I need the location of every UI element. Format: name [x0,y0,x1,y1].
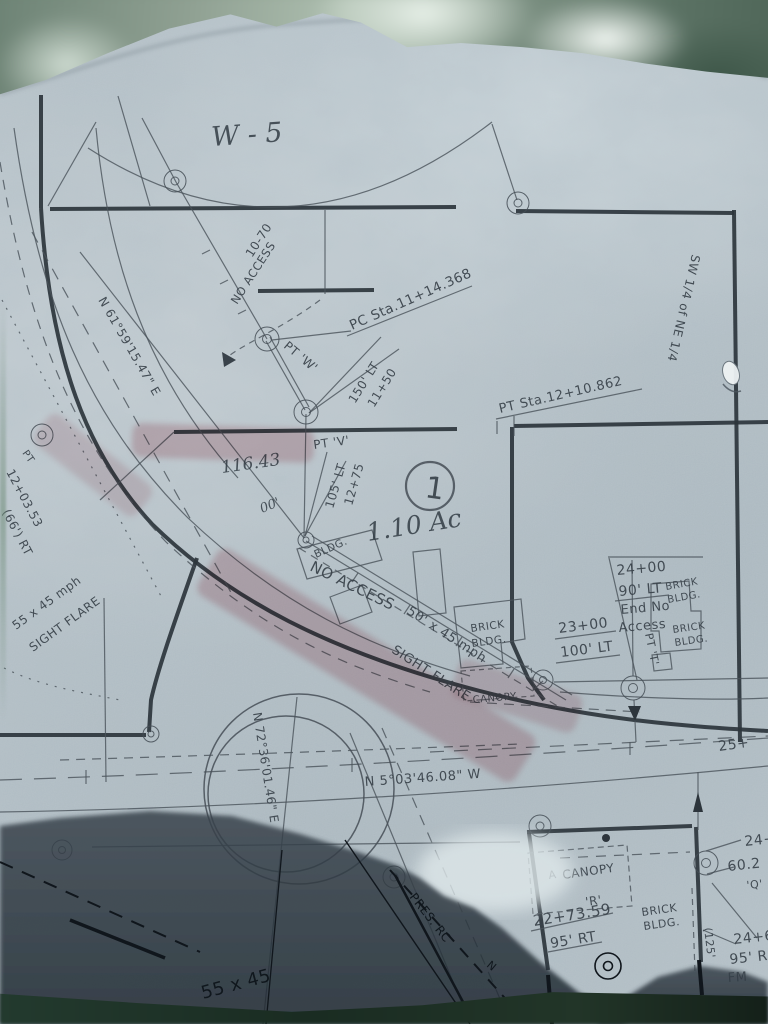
paper-grain [0,0,768,1024]
photo-of-survey-plat: W - 5 10-70 NO ACCESS PC Sta.11+14.368 P… [0,0,768,1024]
point-dot [602,834,610,842]
label-r24: 24+ [744,831,768,850]
label-r246: 24+6 [733,928,768,948]
highlight-band-parcel-corner [131,423,314,463]
paper-left-edge-gap [0,300,6,720]
drawing-sheet: W - 5 10-70 NO ACCESS PC Sta.11+14.368 P… [0,0,768,1024]
label-rq: 'Q' [746,877,763,892]
plat-linework: W - 5 10-70 NO ACCESS PC Sta.11+14.368 P… [0,0,768,1024]
handwritten-w5: W - 5 [210,117,283,153]
label-rfm: FM [727,970,748,986]
